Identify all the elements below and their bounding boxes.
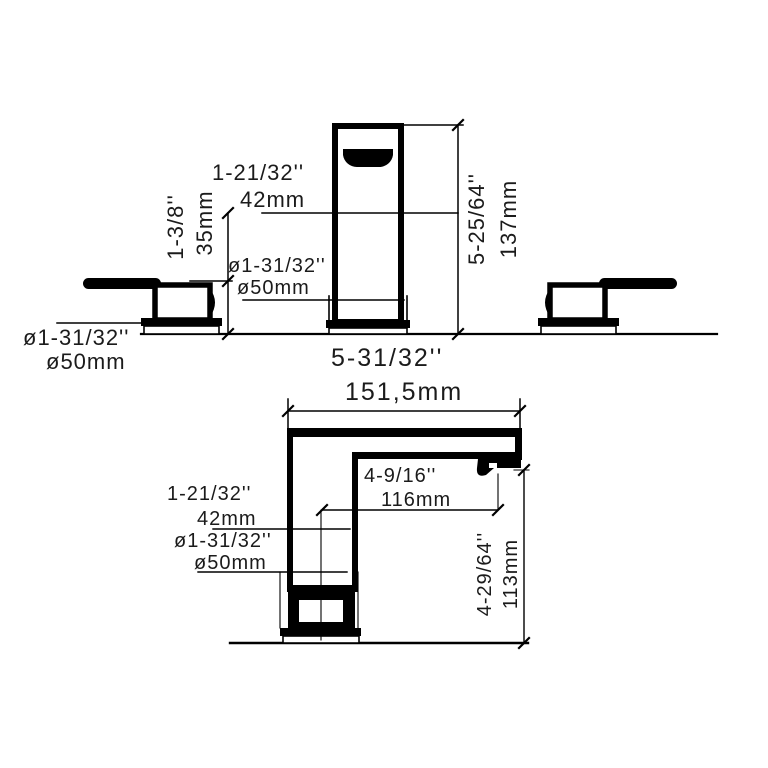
side-spout-outlet — [477, 459, 521, 476]
side-base-diameter-inches-label: ø1-31/32'' — [174, 531, 272, 551]
side-body-left-edge — [287, 428, 293, 588]
front-right-handle — [538, 278, 677, 334]
side-body-width-mm-label: 42mm — [197, 509, 257, 529]
front-spout-diameter-inches-label: ø1-31/32'' — [228, 256, 326, 276]
side-reach-mm-label: 116mm — [381, 490, 451, 510]
side-outlet-height-mm-label: 113mm — [501, 489, 521, 659]
front-handle-diameter-inches-label: ø1-31/32'' — [23, 327, 129, 349]
left-handle-baseplate — [144, 326, 219, 334]
technical-drawing-canvas: 1-21/32'' 42mm 1-3/8'' 35mm ø1-31/32'' ø… — [0, 0, 768, 768]
side-body-right-edge — [352, 452, 358, 592]
left-handle-lever — [83, 278, 161, 289]
front-spout — [326, 126, 410, 334]
left-handle-escutcheon — [141, 318, 222, 326]
front-overall-width-inches-label: 5-31/32'' — [331, 346, 443, 371]
front-handle-height-inches-label: 1-3/8'' — [165, 177, 187, 277]
front-overall-height-mm-label: 137mm — [498, 134, 520, 304]
spout-aerator — [343, 149, 393, 167]
side-arm-right-end — [515, 428, 522, 460]
side-escutcheon-top — [287, 585, 358, 592]
right-handle-escutcheon — [538, 318, 619, 326]
side-reach-inches-label: 4-9/16'' — [364, 466, 436, 486]
side-spout-top-bar — [287, 428, 522, 437]
left-handle-body — [155, 285, 210, 320]
side-body-width-inches-label: 1-21/32'' — [167, 484, 251, 504]
front-overall-height-inches-label: 5-25/64'' — [466, 134, 488, 304]
spout-baseplate — [329, 328, 407, 334]
side-arm-underside — [352, 452, 516, 459]
front-handle-height-mm-label: 35mm — [194, 173, 216, 273]
right-handle-baseplate — [541, 326, 616, 334]
side-outlet-notch — [489, 463, 497, 468]
spout-escutcheon — [326, 320, 410, 328]
front-spout-upper-inches-label: 1-21/32'' — [212, 162, 304, 184]
right-handle-lever — [599, 278, 677, 289]
front-handle-diameter-mm-label: ø50mm — [46, 351, 126, 373]
right-handle-body — [550, 285, 605, 320]
front-overall-width-mm-label: 151,5mm — [345, 380, 463, 405]
side-outlet-height-inches-label: 4-29/64'' — [475, 489, 495, 659]
front-spout-upper-mm-label: 42mm — [240, 189, 305, 211]
side-base-diameter-mm-label: ø50mm — [194, 553, 267, 573]
front-spout-diameter-mm-label: ø50mm — [237, 278, 310, 298]
